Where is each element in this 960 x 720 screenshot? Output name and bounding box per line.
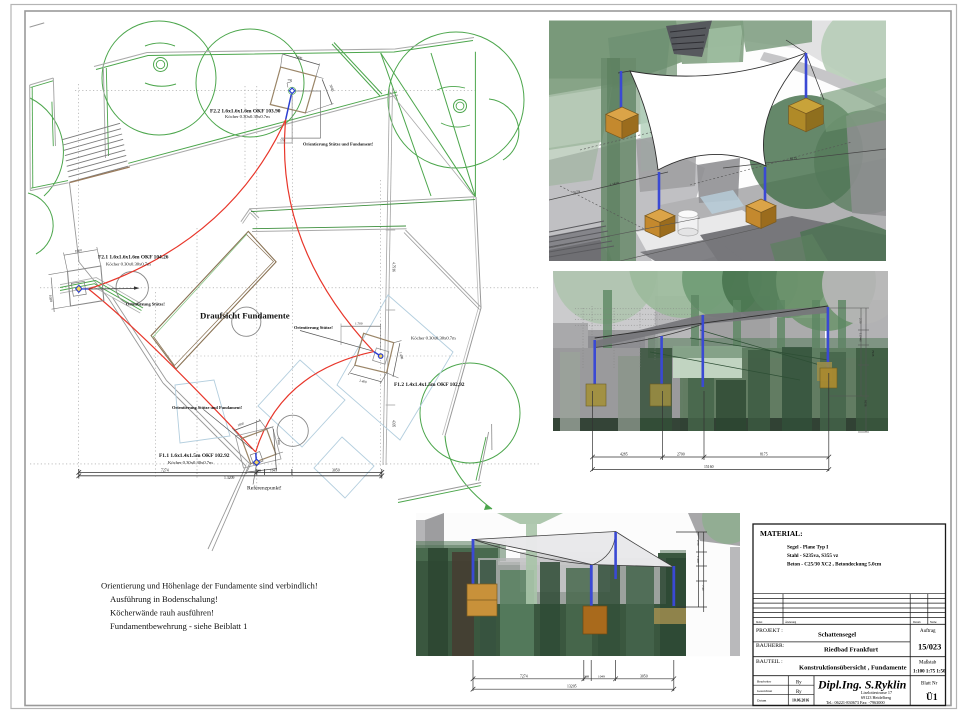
svg-text:2.50: 2.50 [696, 540, 700, 546]
svg-text:Segel - Plane Typ I: Segel - Plane Typ I [787, 545, 828, 551]
svg-text:Beton - C25/30 XC2 , Betond: Beton - C25/30 XC2 , Betondeckung 5.0cm [787, 562, 882, 568]
svg-text:Fundamentbewehrung - siehe Bei: Fundamentbewehrung - siehe Beiblatt 1 [110, 621, 247, 631]
svg-text:3050: 3050 [640, 674, 648, 678]
svg-text:Maßstab: Maßstab [919, 661, 937, 666]
svg-text:9156: 9156 [864, 400, 868, 407]
svg-text:MATERIAL:: MATERIAL: [760, 529, 803, 538]
svg-text:4305: 4305 [392, 420, 396, 427]
svg-text:Bearbeiter: Bearbeiter [757, 680, 772, 684]
svg-text:Blatt Nr: Blatt Nr [921, 682, 938, 687]
svg-text:7938: 7938 [871, 350, 875, 357]
svg-text:Konstruktionsübersicht , Funda: Konstruktionsübersicht , Fundamente [799, 665, 907, 672]
svg-text:2700: 2700 [677, 453, 685, 457]
svg-text:7274: 7274 [161, 468, 169, 472]
svg-text:368: 368 [584, 674, 589, 678]
svg-text:Köcher 0.30x0.30x0.7m: Köcher 0.30x0.30x0.7m [225, 114, 270, 119]
svg-text:Köcherwände rauh ausführen!: Köcherwände rauh ausführen! [110, 608, 214, 618]
svg-text:PROJEKT :: PROJEKT : [756, 628, 783, 634]
svg-text:Datum: Datum [913, 621, 921, 624]
svg-text:1.700: 1.700 [355, 322, 363, 326]
svg-text:2.50: 2.50 [859, 318, 863, 324]
svg-text:1.400: 1.400 [696, 556, 700, 564]
svg-text:7.40: 7.40 [701, 585, 705, 591]
svg-text:8175: 8175 [760, 453, 768, 457]
svg-text:Änderung: Änderung [785, 621, 797, 624]
svg-text:3050: 3050 [332, 468, 340, 472]
svg-text:750: 750 [288, 78, 293, 82]
svg-text:4285: 4285 [620, 453, 628, 457]
svg-text:Köcher 0.30x0.30x0.7m: Köcher 0.30x0.30x0.7m [168, 460, 213, 465]
svg-text:Referenzpunkt!: Referenzpunkt! [247, 485, 282, 492]
svg-text:Index: Index [756, 621, 763, 624]
svg-text:F1.2 1.4x1.4x1.5m OKF 102,92: F1.2 1.4x1.4x1.5m OKF 102,92 [394, 382, 465, 388]
svg-text:BAUTEIL :: BAUTEIL : [756, 659, 783, 665]
svg-text:Orientierung Stütze!: Orientierung Stütze! [294, 325, 333, 330]
svg-text:15/023: 15/023 [918, 643, 941, 652]
svg-text:Datum: Datum [757, 699, 767, 703]
svg-text:Orientierung Stütze und Fundam: Orientierung Stütze und Fundament! [303, 142, 374, 147]
svg-text:Schattensegel: Schattensegel [818, 632, 856, 639]
svg-text:Orientierung und Höhenlage der: Orientierung und Höhenlage der Fundament… [101, 581, 318, 591]
svg-text:1045: 1045 [270, 468, 277, 472]
svg-text:Orientierung Stütze und Fundam: Orientierung Stütze und Fundament! [172, 405, 243, 410]
svg-text:Riedbad Frankfurt: Riedbad Frankfurt [824, 647, 879, 654]
svg-text:Ry: Ry [796, 681, 802, 686]
svg-text:570: 570 [280, 139, 285, 143]
svg-text:F1.1 1.6x1.4x1.5m OKF 102.92: F1.1 1.6x1.4x1.5m OKF 102.92 [159, 453, 230, 459]
svg-text:1049: 1049 [598, 674, 605, 678]
svg-text:Draufsicht Fundamente: Draufsicht Fundamente [200, 311, 290, 321]
svg-text:Ausführung in Bodenschalung!: Ausführung in Bodenschalung! [110, 594, 218, 604]
svg-text:Köcher 0.30x0.30x0.7m: Köcher 0.30x0.30x0.7m [106, 262, 151, 267]
svg-text:Auftrag: Auftrag [920, 629, 936, 634]
svg-text:Orientierung Stütze!: Orientierung Stütze! [126, 302, 165, 307]
svg-text:Name: Name [930, 621, 937, 624]
svg-text:1:100 1:75 1:50: 1:100 1:75 1:50 [913, 670, 946, 675]
svg-text:13205: 13205 [567, 685, 577, 689]
svg-text:1.0440: 1.0440 [859, 333, 863, 342]
svg-text:Ry: Ry [796, 690, 802, 695]
svg-text:Stahl - S235va, S355 vz: Stahl - S235va, S355 vz [787, 553, 839, 559]
svg-text:BAUHERR:: BAUHERR: [756, 643, 785, 649]
svg-text:7274: 7274 [520, 674, 528, 678]
svg-text:Köcher 0.30x0.30x0.7m: Köcher 0.30x0.30x0.7m [411, 336, 456, 341]
svg-text:4.7916: 4.7916 [392, 262, 396, 272]
svg-text:Gezeichnet: Gezeichnet [757, 689, 772, 693]
svg-text:1.3209: 1.3209 [224, 476, 235, 480]
svg-text:10.06.2016: 10.06.2016 [792, 699, 809, 703]
svg-text:F2.1 1.6x1.6x1.6m OKF 104.26: F2.1 1.6x1.6x1.6m OKF 104.26 [98, 255, 169, 261]
svg-text:368: 368 [256, 468, 261, 472]
svg-text:15160: 15160 [704, 465, 714, 469]
svg-text:1400: 1400 [277, 438, 281, 445]
svg-text:Tel.: 06221-830673 Fax: -7963: Tel.: 06221-830673 Fax: -7963000 [826, 700, 885, 705]
